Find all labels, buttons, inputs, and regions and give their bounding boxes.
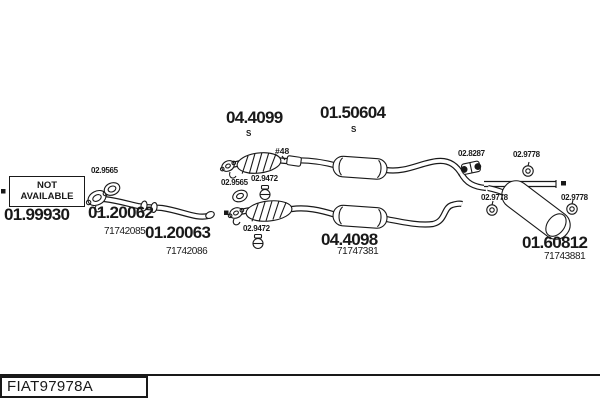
part-suffix-mid-silencer: S bbox=[351, 125, 356, 134]
hanger-icon-right bbox=[567, 200, 577, 214]
fitting-code-hanger-top: 02.9778 bbox=[513, 150, 540, 159]
part-number-front-pipe-a: 01.20062 bbox=[88, 203, 153, 223]
part-ref-front-pipe-a: 71742085 bbox=[104, 226, 145, 237]
fitting-code-gasket-2: 02.9565 bbox=[221, 178, 248, 187]
exhaust-diagram-drawing bbox=[0, 0, 600, 400]
part-ref-front-pipe-b: 71742086 bbox=[166, 246, 207, 257]
fitting-code-clamp-2: 02.9472 bbox=[243, 224, 270, 233]
clamp-icon-2 bbox=[253, 234, 263, 249]
pipe-marker-label: #48 bbox=[275, 146, 289, 156]
fitting-code-hanger-right: 02.9778 bbox=[561, 193, 588, 202]
gasket-icon-2 bbox=[231, 188, 249, 204]
part-number-rear-silencer: 01.60812 bbox=[522, 233, 587, 253]
mid-silencer-bottom-drawing bbox=[332, 205, 387, 229]
fitting-code-gasket-1: 02.9565 bbox=[91, 166, 118, 175]
clamp-icon-1 bbox=[260, 185, 270, 200]
part-number-mid-silencer: 01.50604 bbox=[320, 103, 385, 123]
cat-converter-bottom-drawing bbox=[245, 199, 293, 224]
part-ref-mid-section: 71747381 bbox=[337, 246, 378, 257]
not-available-box: NOT AVAILABLE bbox=[9, 176, 85, 207]
part-suffix-cat-converter: S bbox=[246, 129, 251, 138]
pipe-end-marker-right bbox=[561, 181, 566, 186]
fitting-code-clamp-1: 02.9472 bbox=[251, 174, 278, 183]
hanger-icon-top bbox=[523, 162, 533, 176]
flange-bottom-drawing bbox=[226, 205, 245, 225]
exhaust-parts-diagram: NOT AVAILABLE 01.99930 01.20062 71742085… bbox=[0, 0, 600, 400]
coupling-icon bbox=[460, 160, 483, 175]
part-number-front-pipe-b: 01.20063 bbox=[145, 223, 210, 243]
drawing-code: FIAT97978A bbox=[7, 378, 93, 395]
not-available-line1: NOT bbox=[10, 180, 84, 191]
not-available-line2: AVAILABLE bbox=[10, 191, 84, 202]
pipe-end-marker-left bbox=[1, 189, 6, 194]
part-number-cat-converter: 04.4099 bbox=[226, 108, 283, 128]
part-ref-rear-silencer: 71743881 bbox=[544, 251, 585, 262]
fitting-code-hanger-left: 02.9778 bbox=[481, 193, 508, 202]
part-number-front-pipe-na: 01.99930 bbox=[4, 205, 69, 225]
fitting-code-coupling: 02.8287 bbox=[458, 149, 485, 158]
drawing-code-box: FIAT97978A bbox=[0, 376, 148, 398]
joint-marker bbox=[224, 211, 229, 216]
pipe-sleeve bbox=[286, 156, 301, 167]
mid-silencer-top-drawing bbox=[332, 156, 387, 180]
hanger-icon-left bbox=[487, 201, 497, 215]
